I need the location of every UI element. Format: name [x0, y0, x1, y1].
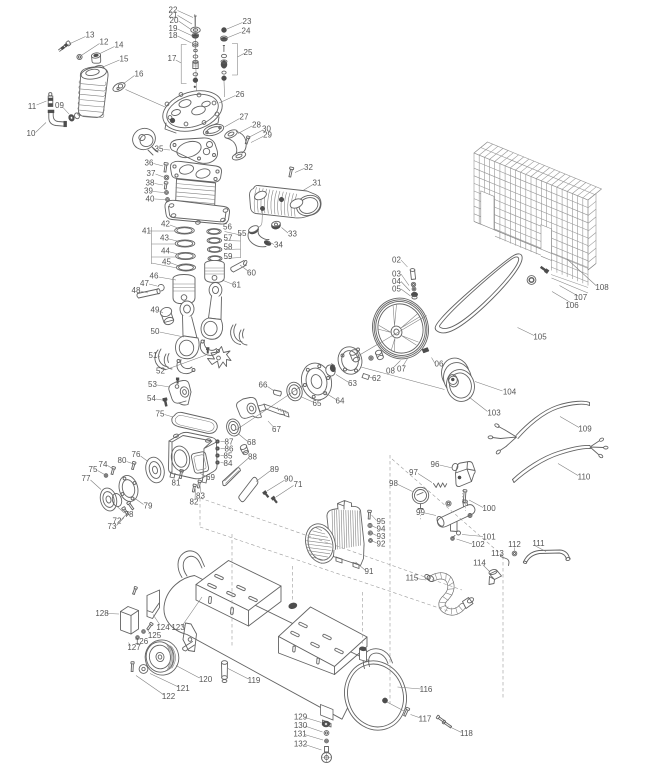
svg-text:123: 123 — [171, 623, 185, 632]
svg-text:89: 89 — [270, 465, 279, 474]
svg-text:81: 81 — [172, 479, 181, 488]
svg-text:43: 43 — [160, 234, 169, 243]
svg-text:36: 36 — [145, 159, 154, 168]
svg-text:127: 127 — [127, 643, 141, 652]
svg-text:63: 63 — [348, 379, 357, 388]
svg-text:53: 53 — [148, 380, 157, 389]
svg-text:45: 45 — [162, 258, 171, 267]
svg-text:121: 121 — [176, 684, 190, 693]
svg-text:105: 105 — [533, 333, 547, 342]
svg-text:125: 125 — [148, 631, 162, 640]
svg-text:76: 76 — [132, 450, 141, 459]
svg-text:33: 33 — [288, 230, 297, 239]
svg-text:114: 114 — [473, 559, 486, 568]
svg-text:75: 75 — [89, 465, 98, 474]
svg-text:57: 57 — [224, 234, 233, 243]
svg-text:47: 47 — [140, 279, 149, 288]
svg-text:25: 25 — [244, 48, 253, 57]
svg-text:74: 74 — [99, 460, 108, 469]
svg-text:102: 102 — [471, 540, 485, 549]
svg-text:120: 120 — [199, 675, 213, 684]
svg-text:29: 29 — [263, 131, 272, 140]
svg-text:26: 26 — [236, 90, 245, 99]
svg-text:109: 109 — [578, 425, 592, 434]
svg-text:31: 31 — [313, 179, 322, 188]
svg-text:19: 19 — [169, 24, 178, 33]
svg-text:50: 50 — [151, 327, 160, 336]
svg-text:132: 132 — [294, 740, 308, 749]
svg-text:83: 83 — [196, 492, 205, 501]
svg-text:75: 75 — [156, 410, 165, 419]
svg-text:66: 66 — [259, 381, 268, 390]
svg-text:131: 131 — [293, 730, 307, 739]
svg-text:10: 10 — [27, 129, 36, 138]
svg-text:103: 103 — [487, 409, 501, 418]
svg-text:73: 73 — [108, 522, 117, 531]
svg-text:88: 88 — [248, 453, 257, 462]
svg-text:91: 91 — [365, 567, 374, 576]
svg-text:119: 119 — [248, 676, 261, 685]
svg-text:62: 62 — [372, 374, 381, 383]
svg-text:111: 111 — [532, 539, 545, 548]
svg-text:40: 40 — [146, 195, 155, 204]
svg-text:24: 24 — [242, 27, 251, 36]
svg-text:48: 48 — [132, 286, 141, 295]
svg-text:58: 58 — [224, 243, 233, 252]
svg-text:09: 09 — [55, 101, 64, 110]
svg-text:49: 49 — [151, 306, 160, 315]
svg-text:97: 97 — [409, 468, 418, 477]
svg-text:07: 07 — [397, 365, 406, 374]
svg-text:23: 23 — [243, 17, 252, 26]
svg-text:27: 27 — [240, 113, 249, 122]
svg-text:90: 90 — [284, 475, 293, 484]
svg-text:55: 55 — [238, 229, 247, 238]
svg-text:128: 128 — [95, 609, 109, 618]
svg-text:13: 13 — [86, 31, 95, 40]
svg-text:08: 08 — [386, 367, 395, 376]
svg-text:59: 59 — [224, 252, 233, 261]
svg-text:95: 95 — [377, 517, 386, 526]
svg-text:87: 87 — [225, 438, 234, 447]
svg-text:108: 108 — [595, 283, 609, 292]
svg-text:32: 32 — [304, 163, 313, 172]
svg-text:12: 12 — [100, 38, 109, 47]
svg-text:05: 05 — [392, 285, 401, 294]
svg-text:104: 104 — [503, 388, 517, 397]
svg-text:46: 46 — [150, 272, 159, 281]
svg-text:02: 02 — [392, 256, 401, 265]
svg-text:117: 117 — [419, 715, 432, 724]
svg-text:22: 22 — [169, 6, 178, 15]
svg-text:44: 44 — [161, 247, 170, 256]
svg-text:115: 115 — [406, 574, 419, 583]
svg-text:37: 37 — [147, 169, 156, 178]
svg-text:77: 77 — [82, 474, 91, 483]
svg-text:15: 15 — [120, 55, 129, 64]
svg-text:34: 34 — [274, 241, 283, 250]
svg-text:42: 42 — [161, 220, 170, 229]
svg-text:61: 61 — [232, 281, 241, 290]
svg-text:113: 113 — [491, 549, 504, 558]
svg-text:28: 28 — [252, 121, 261, 130]
svg-text:100: 100 — [482, 504, 496, 513]
svg-text:67: 67 — [272, 425, 281, 434]
svg-text:99: 99 — [416, 508, 425, 517]
svg-text:11: 11 — [28, 102, 37, 111]
svg-text:41: 41 — [142, 227, 151, 236]
svg-text:64: 64 — [336, 397, 345, 406]
svg-text:107: 107 — [574, 293, 588, 302]
svg-text:06: 06 — [435, 360, 444, 369]
svg-text:79: 79 — [144, 502, 153, 511]
svg-text:68: 68 — [247, 438, 256, 447]
svg-text:112: 112 — [508, 540, 521, 549]
svg-text:106: 106 — [565, 301, 579, 310]
svg-text:80: 80 — [118, 456, 127, 465]
svg-text:78: 78 — [125, 510, 134, 519]
svg-text:98: 98 — [389, 479, 398, 488]
svg-text:69: 69 — [206, 473, 215, 482]
svg-text:52: 52 — [156, 367, 165, 376]
svg-text:110: 110 — [578, 473, 591, 482]
svg-text:51: 51 — [149, 351, 158, 360]
svg-text:96: 96 — [431, 460, 440, 469]
svg-text:116: 116 — [420, 685, 433, 694]
svg-text:54: 54 — [147, 394, 156, 403]
svg-text:60: 60 — [247, 269, 256, 278]
svg-text:65: 65 — [313, 399, 322, 408]
svg-text:56: 56 — [223, 223, 232, 232]
svg-text:71: 71 — [294, 480, 303, 489]
svg-text:122: 122 — [162, 692, 176, 701]
svg-text:14: 14 — [115, 41, 124, 50]
svg-text:17: 17 — [168, 54, 177, 63]
svg-text:16: 16 — [135, 70, 144, 79]
svg-text:35: 35 — [155, 145, 164, 154]
svg-text:118: 118 — [460, 729, 473, 738]
